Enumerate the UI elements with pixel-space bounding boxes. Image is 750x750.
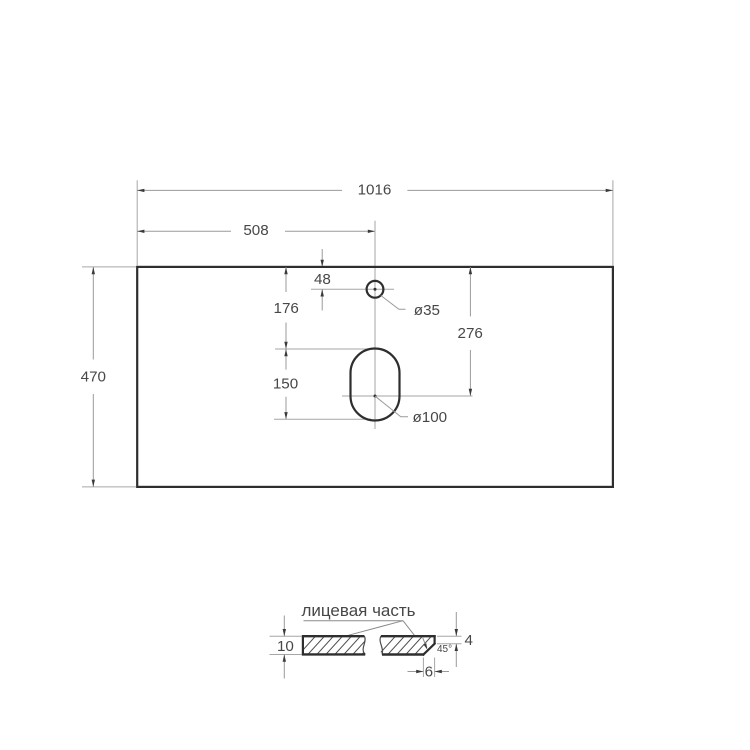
- svg-text:6: 6: [425, 663, 433, 680]
- svg-text:45°: 45°: [437, 644, 452, 655]
- svg-text:4: 4: [465, 632, 473, 649]
- svg-text:1016: 1016: [358, 181, 392, 198]
- svg-text:508: 508: [243, 222, 268, 239]
- svg-text:176: 176: [274, 300, 299, 317]
- svg-text:лицевая часть: лицевая часть: [301, 601, 415, 620]
- svg-text:276: 276: [458, 325, 483, 342]
- svg-text:ø35: ø35: [414, 302, 440, 319]
- svg-text:150: 150: [273, 375, 298, 392]
- svg-text:48: 48: [314, 271, 331, 288]
- svg-text:10: 10: [277, 638, 294, 655]
- svg-text:ø100: ø100: [413, 409, 448, 426]
- svg-text:470: 470: [81, 369, 106, 386]
